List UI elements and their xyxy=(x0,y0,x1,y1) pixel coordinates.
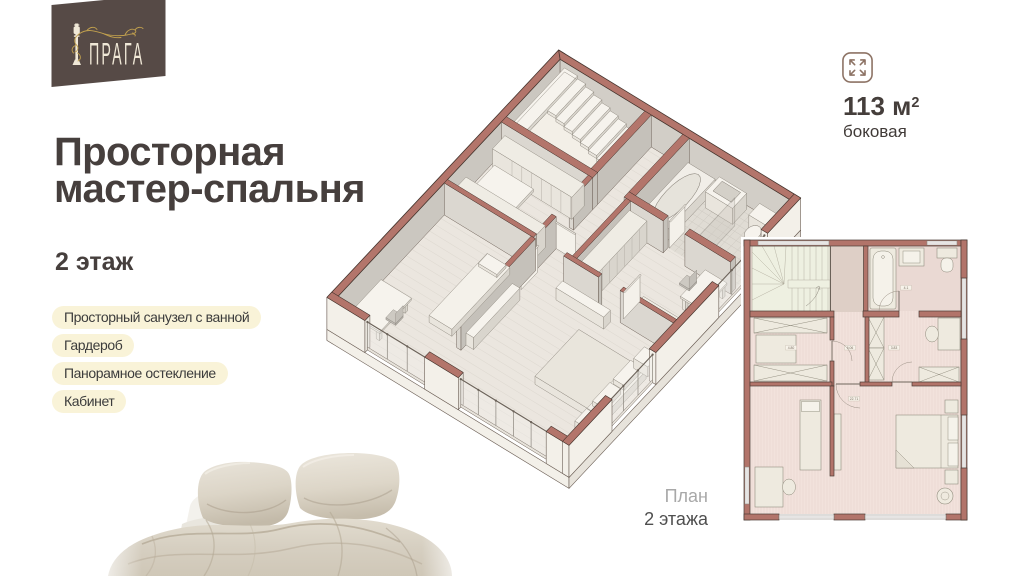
svg-text:4.80: 4.80 xyxy=(788,346,795,350)
svg-text:ПРАГА: ПРАГА xyxy=(89,38,144,73)
svg-text:3.83: 3.83 xyxy=(891,346,898,350)
svg-text:6.06: 6.06 xyxy=(847,346,854,350)
svg-text:4.1: 4.1 xyxy=(904,286,909,290)
svg-text:22.71: 22.71 xyxy=(850,397,859,401)
